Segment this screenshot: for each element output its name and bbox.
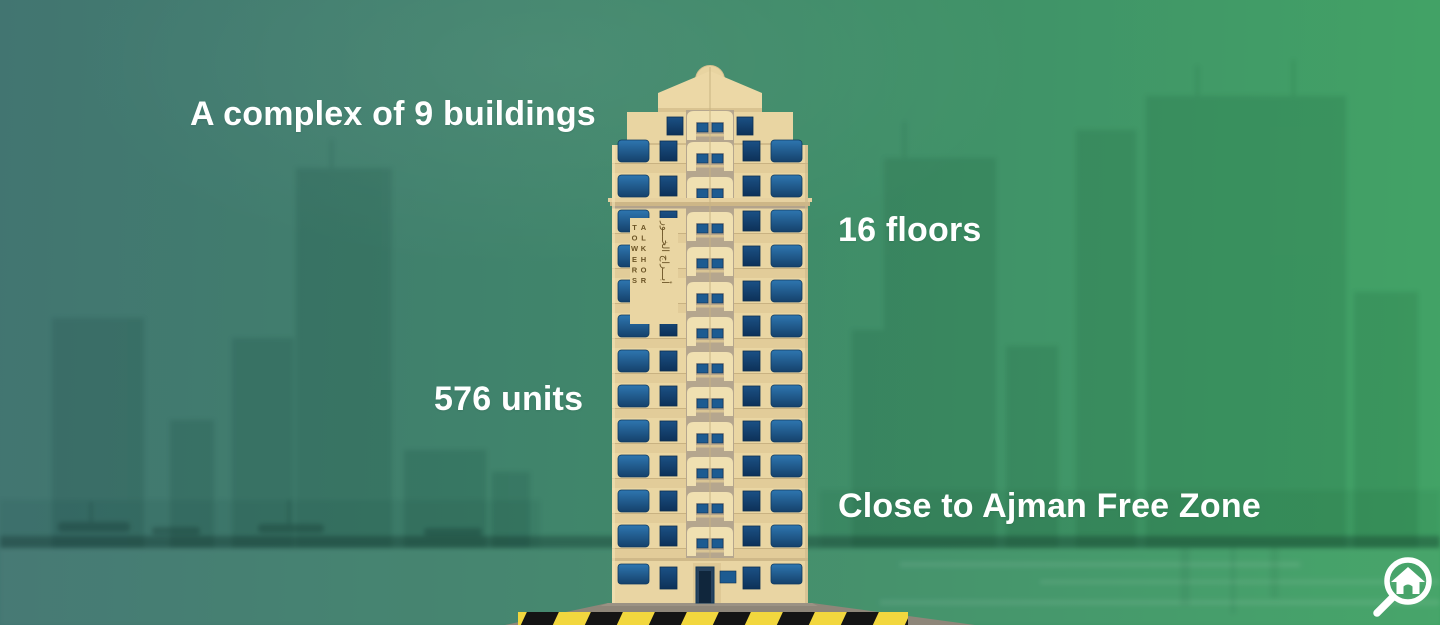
infographic-canvas: ALKHOR TOWERS أبـــراج الخـــور A comple…: [0, 0, 1440, 625]
tower-ground-floor: [612, 558, 808, 603]
bayut-logo: [1358, 546, 1438, 625]
tower-seam: [710, 67, 711, 558]
stat-units-label: 576 units: [434, 381, 583, 418]
tower-name-ar: أبـــراج الخـــور: [652, 221, 670, 321]
tower-illustration: [500, 52, 1000, 625]
tower-name-en: ALKHOR TOWERS: [634, 223, 648, 319]
home-search-magnifier-icon: [1377, 560, 1429, 613]
hazard-strip: [518, 612, 908, 625]
stat-location-label: Close to Ajman Free Zone: [838, 488, 1261, 525]
skyline-left-buildings: [52, 140, 530, 548]
stat-buildings-label: A complex of 9 buildings: [190, 96, 596, 133]
stat-floors-label: 16 floors: [838, 212, 982, 249]
